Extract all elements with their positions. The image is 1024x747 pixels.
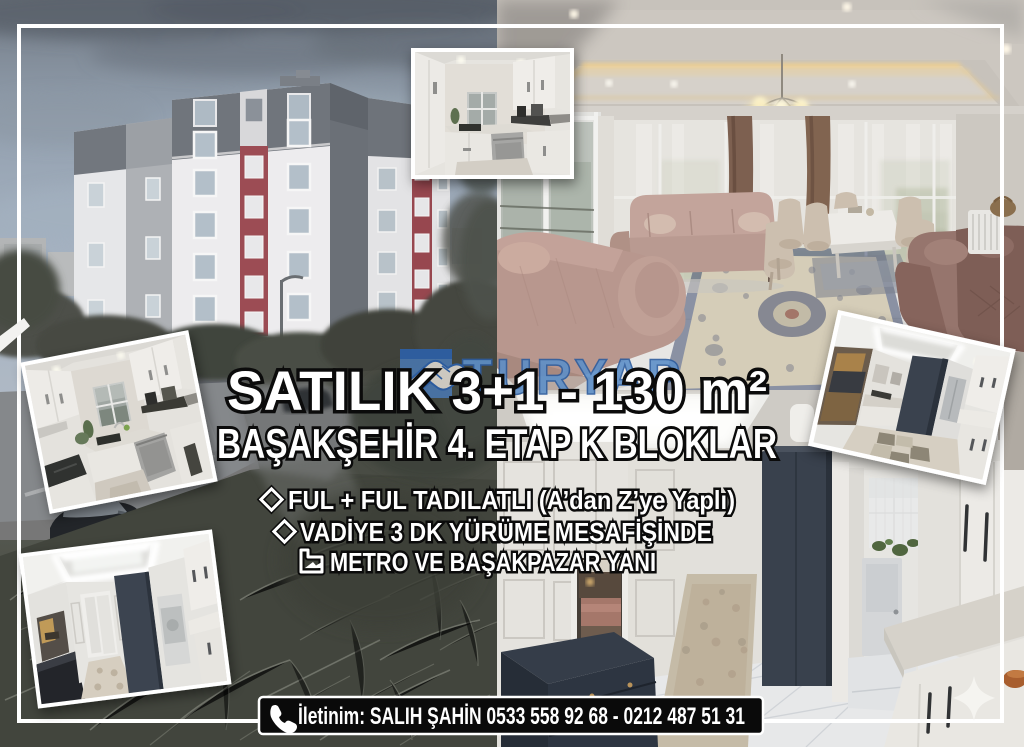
svg-text:METRO VE BAŞAKPAZAR YANI: METRO VE BAŞAKPAZAR YANI [330, 547, 656, 577]
svg-text:BAŞAKŞEHİR 4. ETAP K BLOKLAR: BAŞAKŞEHİR 4. ETAP K BLOKLAR [217, 420, 777, 467]
svg-text:İletinim: SALIH ŞAHİN 0533 558: İletinim: SALIH ŞAHİN 0533 558 92 68 - 0… [298, 703, 745, 730]
svg-text:FUL + FUL TADILATLI (A’dan Z’y: FUL + FUL TADILATLI (A’dan Z’ye Yaplı) [288, 485, 735, 515]
svg-text:SATILIK 3+1 - 130 m²: SATILIK 3+1 - 130 m² [227, 359, 767, 422]
svg-text:VADİYE 3 DK YÜRÜME MESAFİŞİNDE: VADİYE 3 DK YÜRÜME MESAFİŞİNDE [300, 517, 712, 547]
